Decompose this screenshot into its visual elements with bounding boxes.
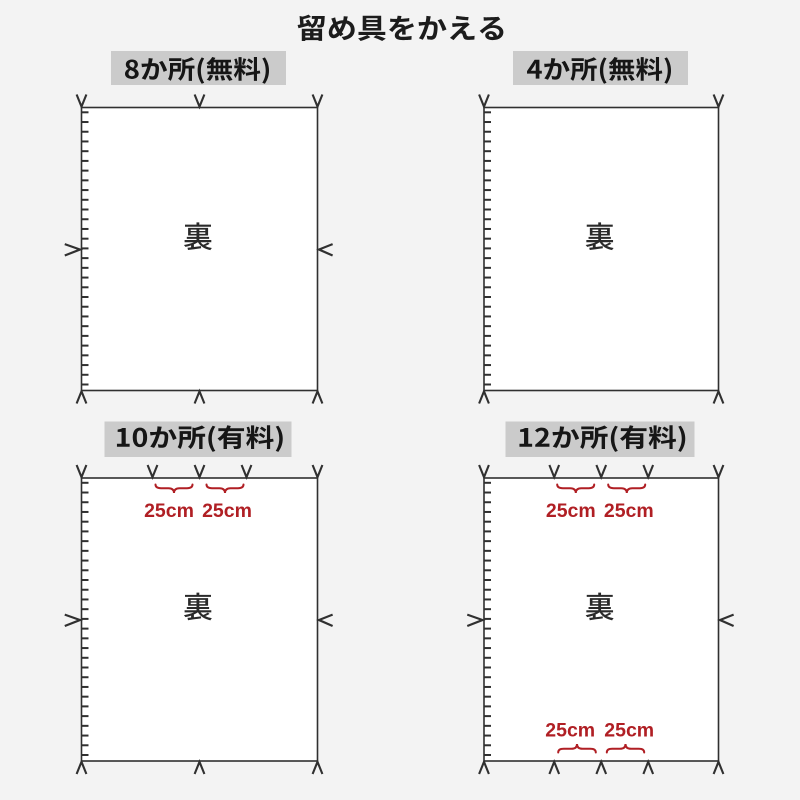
svg-text:25cm: 25cm — [604, 720, 654, 742]
svg-text:25cm: 25cm — [545, 720, 595, 742]
svg-text:25cm: 25cm — [604, 500, 654, 522]
svg-text:25cm: 25cm — [202, 500, 252, 522]
svg-text:25cm: 25cm — [546, 500, 596, 522]
svg-text:25cm: 25cm — [144, 500, 194, 522]
